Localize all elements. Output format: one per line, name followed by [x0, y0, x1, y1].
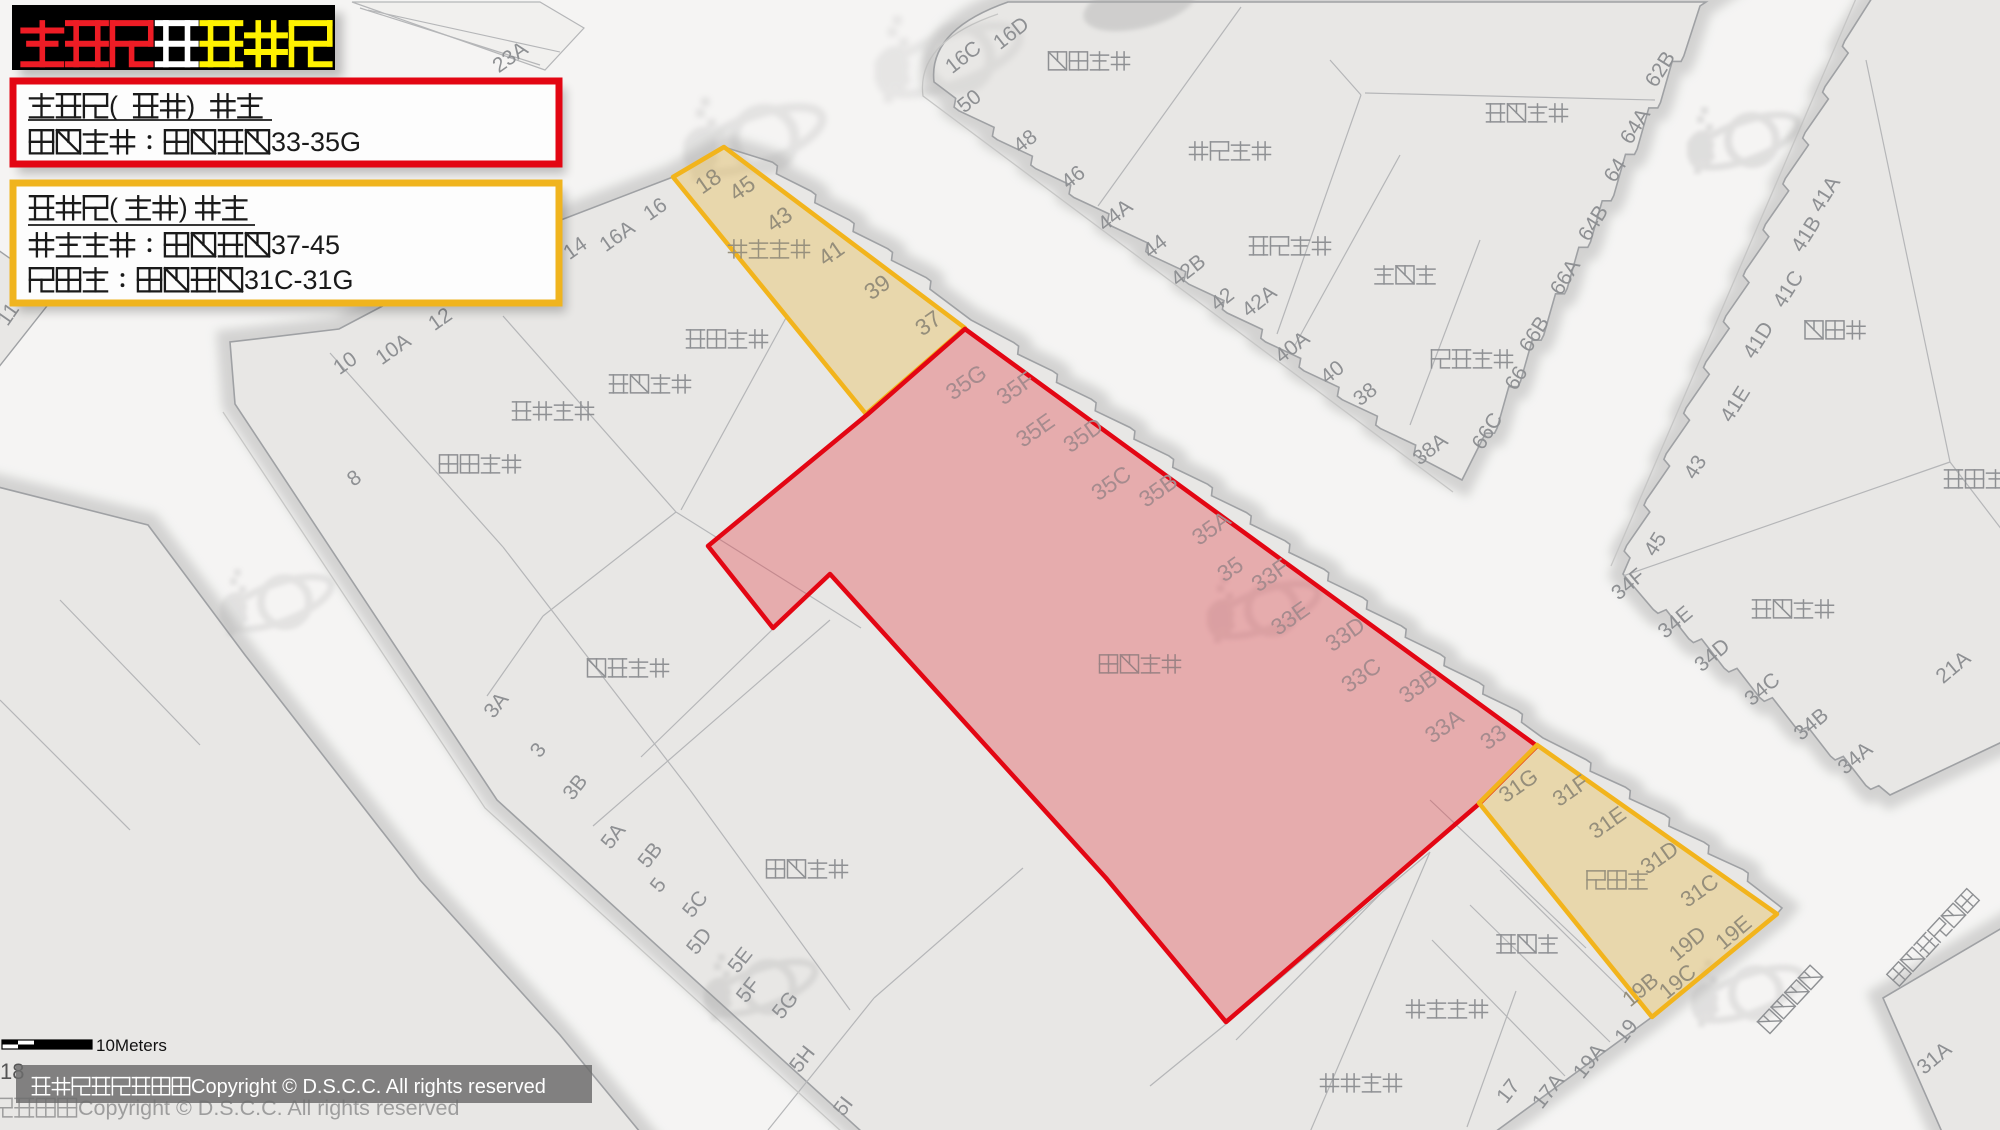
svg-text:): )	[179, 193, 188, 223]
svg-text:31C-31G: 31C-31G	[244, 265, 354, 295]
svg-text:33-35G: 33-35G	[271, 127, 361, 157]
svg-text:37-45: 37-45	[271, 230, 340, 260]
svg-text:Copyright © D.S.C.C. All right: Copyright © D.S.C.C. All rights reserved	[191, 1076, 546, 1098]
svg-text:): )	[186, 91, 195, 121]
svg-text:(: (	[109, 91, 118, 121]
svg-text:10Meters: 10Meters	[96, 1036, 167, 1055]
svg-text:(: (	[109, 193, 118, 223]
